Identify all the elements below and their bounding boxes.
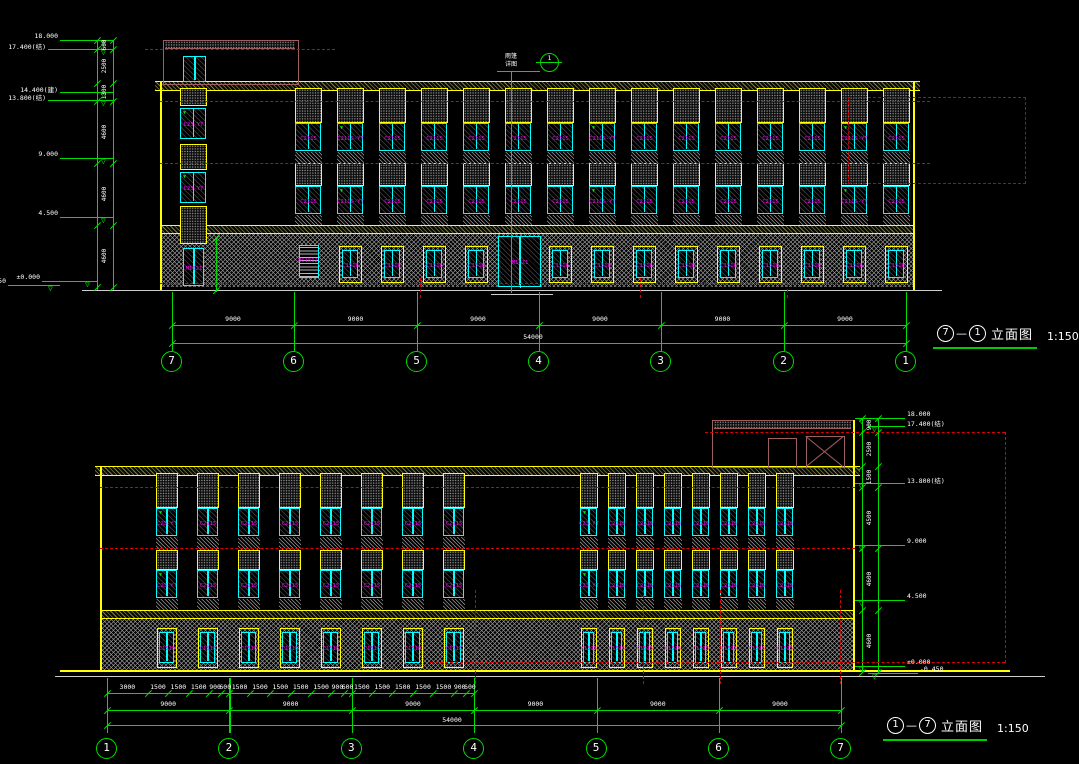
sill-hatch: [608, 599, 626, 610]
window-tag: C1518: [541, 263, 581, 269]
spandrel-panel: [295, 88, 322, 123]
window-tag: C2115: [270, 583, 310, 589]
level-triangle: ▽: [48, 285, 53, 293]
chain-dim-label: 4600: [102, 240, 108, 272]
window-opening-marker: ▼: [183, 111, 186, 116]
dim-line: [172, 343, 906, 344]
window-tag: C1515: [765, 646, 805, 652]
level-label: -0.450: [920, 665, 972, 673]
canopy-note-line1: 雨篷: [496, 53, 526, 60]
window-opening-marker: ▼: [844, 189, 847, 194]
spandrel-panel: [720, 550, 738, 570]
spandrel-panel: [589, 163, 616, 186]
level-label: 13.800(结): [907, 475, 959, 485]
sill-hatch: [421, 152, 448, 163]
dim-label: 9000: [391, 701, 435, 708]
spandrel-panel: [443, 550, 465, 570]
title-grid-bubble-to: 7: [919, 717, 936, 734]
spandrel-panel: [692, 473, 710, 508]
dim-label: 9000: [578, 316, 622, 323]
spandrel-panel: [547, 163, 574, 186]
ground-line: [55, 676, 1045, 677]
level-label: 17.400(结): [907, 418, 959, 428]
red-axis-line: [145, 49, 335, 50]
level-label: 18.000: [6, 32, 58, 40]
window-tag: C2115-YT: [331, 199, 371, 205]
spandrel-panel: [505, 163, 532, 186]
window-tag: C2115: [415, 199, 455, 205]
spandrel-panel: [402, 550, 424, 570]
window-tag: C2115: [289, 136, 329, 142]
sill-hatch: [238, 599, 260, 610]
sill-hatch: [589, 152, 616, 163]
grid-bubble: 6: [283, 351, 304, 372]
grid-bubble: 4: [463, 738, 484, 759]
sill-hatch: [715, 215, 742, 225]
sill-hatch: [320, 599, 342, 610]
spandrel-panel: [421, 163, 448, 186]
level-label: 18.000: [907, 410, 959, 418]
sill-hatch: [547, 215, 574, 225]
spandrel-panel: [720, 473, 738, 508]
spandrel-panel: [505, 88, 532, 123]
window-tag: C1518: [667, 263, 707, 269]
bottom-title-group: 1 — 7 立面图: [883, 716, 987, 741]
window-tag: C2115: [499, 199, 539, 205]
window-tag: C2115: [751, 136, 791, 142]
window-tag: C2115: [457, 136, 497, 142]
window-tag: C2115: [188, 521, 228, 527]
spandrel-panel: [664, 473, 682, 508]
chain-dim-label: 1300: [102, 76, 108, 108]
window-tag: C2115: [709, 136, 749, 142]
canopy-note-line2: 详图: [496, 61, 526, 68]
building-edge: [160, 81, 162, 290]
title-separator: —: [906, 719, 917, 732]
sill-hatch: [443, 599, 465, 610]
window-tag: C2115: [188, 583, 228, 589]
spandrel-panel: [757, 163, 784, 186]
window-opening-marker: ▼: [844, 126, 847, 131]
window-tag: C2115: [541, 199, 581, 205]
dim-label: 9000: [823, 316, 867, 323]
entrance-step: [491, 294, 553, 295]
window-opening-marker: ▼: [340, 189, 343, 194]
window-tag: C2115: [793, 199, 833, 205]
top-view-title: 7 — 1 立面图 1:150: [933, 324, 1079, 349]
window-tag: C2115: [434, 583, 474, 589]
spandrel-panel: [379, 163, 406, 186]
chain-dim-label: 4600: [867, 625, 873, 657]
window-tag: C2115: [877, 199, 917, 205]
spandrel-panel: [337, 88, 364, 123]
window-tag: C2115: [499, 136, 539, 142]
sill-hatch: [337, 215, 364, 225]
spandrel-panel: [238, 473, 260, 508]
sill-hatch: [664, 599, 682, 610]
sill-hatch: [379, 152, 406, 163]
window-tag: C2115: [751, 199, 791, 205]
sill-hatch: [156, 599, 178, 610]
grid-bubble: 3: [341, 738, 362, 759]
spandrel-panel: [636, 550, 654, 570]
sill-hatch: [402, 599, 424, 610]
sill-hatch: [197, 599, 219, 610]
leader-line: [497, 71, 540, 72]
level-label: 13.800(结): [0, 92, 46, 102]
dim-chain-line: [97, 40, 98, 290]
window-tag: C2115: [541, 136, 581, 142]
dim-label: 9000: [211, 316, 255, 323]
sill-hatch: [631, 152, 658, 163]
window-tag: M1021: [174, 266, 214, 272]
red-axis-line: [160, 283, 913, 284]
level-label: ±0.000: [0, 273, 40, 281]
window-tag: C2115: [393, 583, 433, 589]
window-tag: C1515: [393, 646, 433, 652]
level-label: 17.400(结): [0, 41, 46, 51]
window-tag: C1515: [434, 646, 474, 652]
spandrel-panel: [799, 163, 826, 186]
spandrel-panel: [748, 473, 766, 508]
window-tag: C1518: [583, 263, 623, 269]
window-tag: C1515: [188, 646, 228, 652]
red-axis-line: [705, 432, 1005, 433]
sill-hatch: [883, 215, 910, 225]
spandrel-panel: [361, 550, 383, 570]
adjacent-structure-outline: [848, 97, 1026, 184]
grid-bubble: 1: [96, 738, 117, 759]
chain-dim-label: 1500: [867, 461, 873, 493]
spandrel-panel: [631, 163, 658, 186]
spandrel-panel: [197, 473, 219, 508]
dim-label: 9000: [636, 701, 680, 708]
spandrel-panel: [180, 144, 207, 170]
spandrel-panel: [664, 550, 682, 570]
window-opening-marker: ▼: [159, 511, 162, 516]
dim-label: 9000: [269, 701, 313, 708]
window-opening-marker: ▼: [592, 126, 595, 131]
building-edge: [100, 466, 102, 670]
chain-dim-label: 4500: [867, 502, 873, 534]
window-tag: C1515: [147, 646, 187, 652]
penthouse-parapet-band: [714, 421, 851, 429]
dim-label: 9000: [146, 701, 190, 708]
window-tag: C2115: [229, 521, 269, 527]
spandrel-panel: [589, 88, 616, 123]
sill-hatch: [757, 215, 784, 225]
dim-label: 9000: [701, 316, 745, 323]
sill-hatch: [589, 215, 616, 225]
level-label: 4.500: [6, 209, 58, 217]
sill-hatch: [799, 152, 826, 163]
window-tag: C1518: [331, 263, 371, 269]
sill-hatch: [337, 152, 364, 163]
window-tag: C2115: [667, 136, 707, 142]
sill-hatch: [421, 215, 448, 225]
window-tag: C23-YT: [174, 122, 214, 128]
grid-bubble: 5: [586, 738, 607, 759]
grid-bubble: 5: [406, 351, 427, 372]
window-tag: C2115: [289, 199, 329, 205]
detail-callout-bubble: 1: [540, 53, 559, 72]
sill-hatch: [361, 599, 383, 610]
window-tag: C2115: [434, 521, 474, 527]
window-opening-marker: ▼: [340, 126, 343, 131]
window-opening-marker: ▼: [183, 175, 186, 180]
spandrel-panel: [715, 163, 742, 186]
sill-hatch: [547, 152, 574, 163]
red-axis-line: [643, 590, 644, 684]
level-label: 4.500: [907, 592, 959, 600]
floor-band: [160, 225, 913, 234]
title-grid-bubble-from: 1: [887, 717, 904, 734]
spandrel-panel: [197, 550, 219, 570]
spandrel-panel: [631, 88, 658, 123]
top-title-scale: 1:150: [1047, 330, 1079, 343]
bottom-view-title: 1 — 7 立面图 1:150: [883, 716, 1029, 741]
bottom-title-scale: 1:150: [997, 722, 1029, 735]
spandrel-panel: [673, 163, 700, 186]
dim-label: 600: [448, 684, 492, 691]
chain-dim-label: 4600: [102, 116, 108, 148]
spandrel-panel: [636, 473, 654, 508]
grid-bubble: 7: [161, 351, 182, 372]
entrance-step: [487, 290, 557, 291]
grid-bubble: 3: [650, 351, 671, 372]
window-tag: C2115: [229, 583, 269, 589]
red-axis-line: [100, 487, 855, 488]
spandrel-panel: [180, 206, 207, 244]
spandrel-panel: [279, 473, 301, 508]
spandrel-panel: [295, 163, 322, 186]
dim-label: 54000: [430, 717, 474, 724]
spandrel-panel: [692, 550, 710, 570]
dim-label: 54000: [511, 334, 555, 341]
sill-hatch: [748, 599, 766, 610]
window-tag: C2115-YT: [583, 136, 623, 142]
sill-hatch: [841, 215, 868, 225]
sill-hatch: [295, 152, 322, 163]
sill-hatch: [279, 599, 301, 610]
window-tag: C2115: [709, 199, 749, 205]
cad-elevation-drawing: 7 — 1 立面图 1:150 1 — 7 立面图 1:150 ▼C23-YT▼…: [0, 0, 1079, 764]
spandrel-panel: [402, 473, 424, 508]
top-title-group: 7 — 1 立面图: [933, 324, 1037, 349]
window-tag: C1515: [311, 646, 351, 652]
window-tag: C2115: [373, 136, 413, 142]
dim-chain-line: [878, 418, 879, 672]
window-tag: C1515: [229, 646, 269, 652]
spandrel-panel: [673, 88, 700, 123]
window-tag: C1518: [751, 263, 791, 269]
spandrel-panel: [421, 88, 448, 123]
window-opening-marker: ▼: [583, 511, 586, 516]
section-leader-line: [511, 71, 512, 293]
spandrel-panel: [580, 550, 598, 570]
sill-hatch: [463, 152, 490, 163]
window-tag: C2115: [352, 521, 392, 527]
window-tag: C2115: [311, 521, 351, 527]
sill-hatch: [379, 215, 406, 225]
sill-hatch: [720, 599, 738, 610]
sill-hatch: [776, 599, 794, 610]
dim-line: [107, 725, 841, 726]
window-tag: C1518: [835, 263, 875, 269]
grid-bubble: 1: [895, 351, 916, 372]
spandrel-panel: [320, 473, 342, 508]
dim-chain-line: [113, 40, 114, 290]
chain-dim-label: 4600: [102, 178, 108, 210]
sill-hatch: [636, 599, 654, 610]
plinth-line: [60, 670, 1010, 672]
dim-label: 9000: [513, 701, 557, 708]
spandrel-panel: [608, 473, 626, 508]
window-tag: C1518: [373, 263, 413, 269]
sill-hatch: [715, 152, 742, 163]
penthouse-parapet-band: [165, 41, 295, 49]
floor-band: [100, 610, 853, 619]
red-axis-line: [160, 163, 930, 164]
spandrel-panel: [580, 473, 598, 508]
level-triangle: ▽: [101, 158, 106, 166]
level-triangle: ▽: [859, 600, 864, 608]
spandrel-panel: [361, 473, 383, 508]
spandrel-panel: [608, 550, 626, 570]
red-axis-line: [420, 278, 421, 298]
grid-bubble: 2: [773, 351, 794, 372]
level-triangle: ▽: [101, 217, 106, 225]
sill-hatch: [505, 215, 532, 225]
grid-bubble: 6: [708, 738, 729, 759]
sill-hatch: [757, 152, 784, 163]
bottom-title-text: 立面图: [941, 716, 983, 735]
window-tag: C23-YT: [174, 186, 214, 192]
dim-label: 9000: [456, 316, 500, 323]
dim-label: 9000: [758, 701, 802, 708]
entrance-door-leaf: [520, 238, 521, 288]
title-separator: —: [956, 327, 967, 340]
spandrel-panel: [463, 88, 490, 123]
spandrel-panel: [757, 88, 784, 123]
window-tag: C2115: [415, 136, 455, 142]
red-axis-line: [640, 278, 641, 298]
window-opening-marker: ▼: [592, 189, 595, 194]
window-tag: C1515: [352, 646, 392, 652]
red-axis-line: [787, 278, 788, 298]
red-axis-line: [100, 548, 855, 549]
sill-hatch: [295, 215, 322, 225]
sill-hatch: [673, 152, 700, 163]
sill-hatch: [673, 215, 700, 225]
sill-hatch: [505, 152, 532, 163]
window-tag: C1515: [270, 646, 310, 652]
window-opening-marker: ▼: [583, 573, 586, 578]
spandrel-panel: [799, 88, 826, 123]
spandrel-panel: [547, 88, 574, 123]
level-label: -0.450: [0, 277, 6, 285]
sill-hatch: [692, 599, 710, 610]
window-tag: C2115: [765, 521, 805, 527]
spandrel-panel: [238, 550, 260, 570]
spandrel-panel: [776, 550, 794, 570]
spandrel-panel: [320, 550, 342, 570]
window-tag: C23-YT: [147, 521, 187, 527]
window-tag: C1518: [415, 263, 455, 269]
window-tag: C2115: [270, 521, 310, 527]
spandrel-panel: [715, 88, 742, 123]
red-axis-line: [840, 590, 841, 684]
window-tag: C2115: [625, 199, 665, 205]
grid-bubble: 4: [528, 351, 549, 372]
sill-hatch: [799, 215, 826, 225]
window-tag: C2115: [393, 521, 433, 527]
window-tag: C1518: [877, 263, 917, 269]
window-opening-marker: ▼: [159, 573, 162, 578]
spandrel-panel: [748, 550, 766, 570]
red-axis-line: [720, 590, 721, 684]
window-tag: C2115: [457, 199, 497, 205]
title-grid-bubble-to: 1: [969, 325, 986, 342]
dim-label: 9000: [334, 316, 378, 323]
spandrel-panel: [443, 473, 465, 508]
spandrel-panel: [279, 550, 301, 570]
spandrel-panel: [156, 473, 178, 508]
window-tag: C2115: [352, 583, 392, 589]
window-tag: C1518: [793, 263, 833, 269]
level-triangle: ▽: [85, 281, 90, 289]
window-mullion: [194, 57, 196, 80]
spandrel-panel: [463, 163, 490, 186]
top-title-text: 立面图: [991, 324, 1033, 343]
spandrel-panel: [337, 163, 364, 186]
window-tag: C1518: [709, 263, 749, 269]
window-tag: C2115: [765, 583, 805, 589]
spandrel-panel: [156, 550, 178, 570]
window-tag: C1518: [457, 263, 497, 269]
window-tag: C2115: [667, 199, 707, 205]
spandrel-panel: [180, 88, 207, 106]
window-tag: C2115: [311, 583, 351, 589]
red-axis-line: [475, 590, 476, 684]
level-label: 9.000: [6, 150, 58, 158]
window-tag: C2115: [625, 136, 665, 142]
window-tag: C23-YT: [147, 583, 187, 589]
red-axis-line: [1005, 432, 1006, 663]
chain-dim-label: 4600: [867, 563, 873, 595]
sill-hatch: [580, 599, 598, 610]
level-label: 9.000: [907, 537, 959, 545]
window-tag: C2115: [793, 136, 833, 142]
sill-hatch: [631, 215, 658, 225]
window-tag: C2115-YT: [583, 199, 623, 205]
window-tag: C2115-YT: [835, 199, 875, 205]
grid-bubble: 7: [830, 738, 851, 759]
window-tag: C1518: [625, 263, 665, 269]
window-tag: C2115: [373, 199, 413, 205]
window-tag: C2115-YT: [331, 136, 371, 142]
roof-vent: [768, 438, 797, 468]
sill-hatch: [463, 215, 490, 225]
spandrel-panel: [776, 473, 794, 508]
title-grid-bubble-from: 7: [937, 325, 954, 342]
red-axis-line: [160, 101, 930, 102]
grid-bubble: 2: [218, 738, 239, 759]
spandrel-panel: [379, 88, 406, 123]
window-tag: BC1512: [288, 258, 328, 264]
